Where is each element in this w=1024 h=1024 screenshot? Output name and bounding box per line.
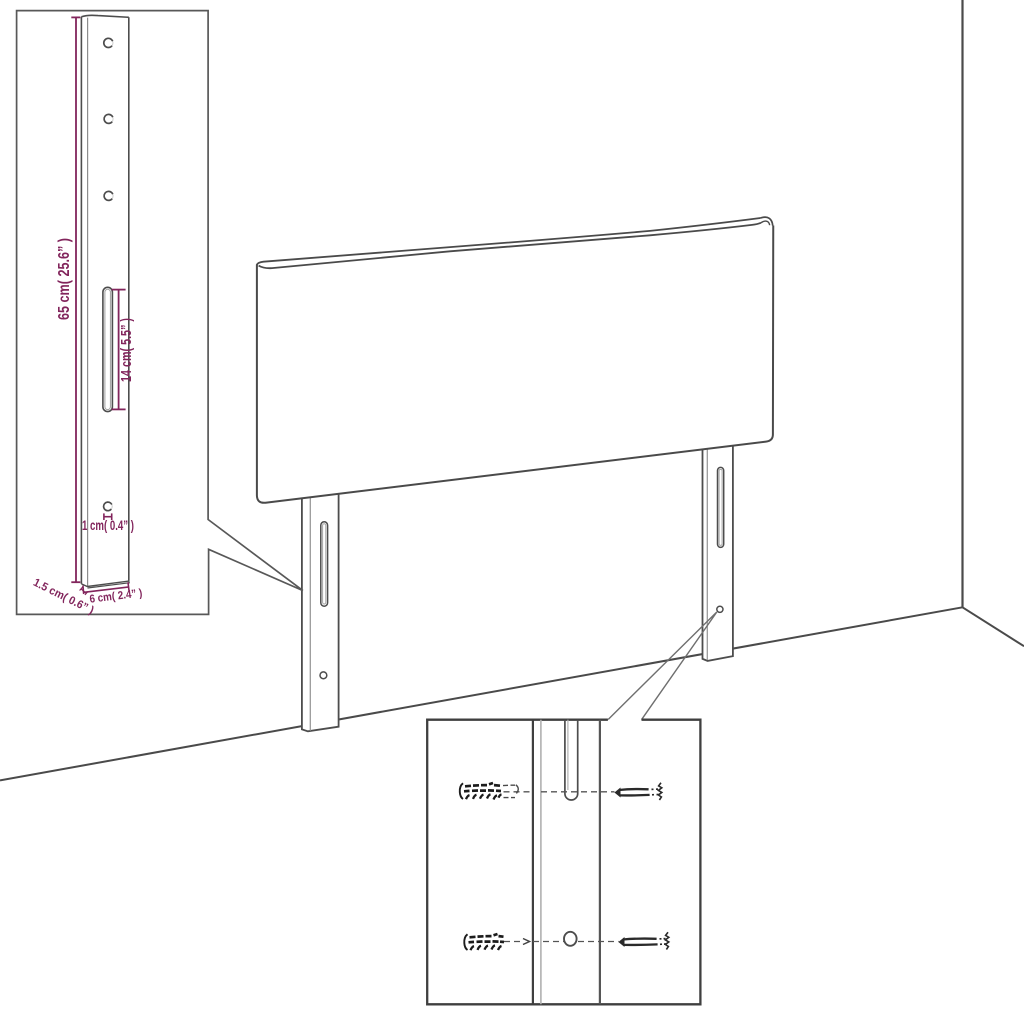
svg-text:14 cm( 5.5” ): 14 cm( 5.5” ) [118,318,135,382]
svg-text:65 cm( 25.6” ): 65 cm( 25.6” ) [56,238,73,320]
svg-text:1 cm( 0.4” ): 1 cm( 0.4” ) [82,518,134,533]
